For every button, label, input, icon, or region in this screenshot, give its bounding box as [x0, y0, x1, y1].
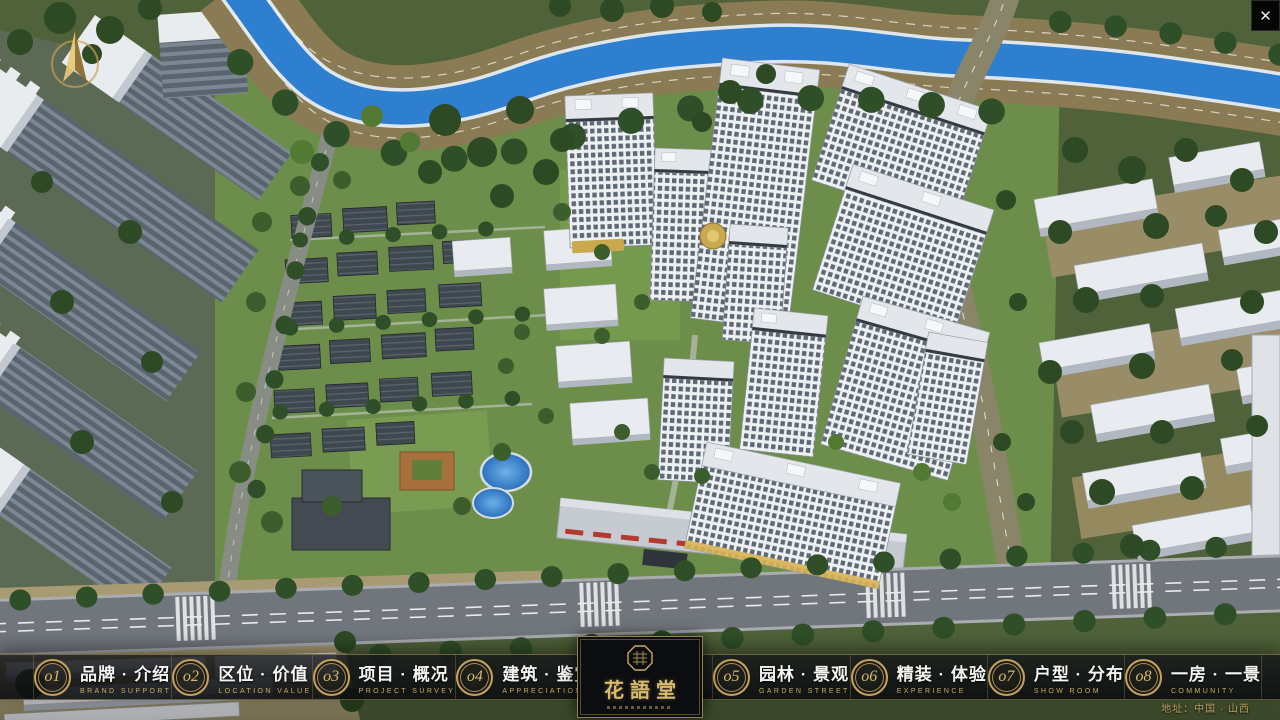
- menu-number-badge: o8: [1125, 659, 1162, 696]
- menu-item-subtitle: APPRECIATION: [502, 688, 582, 695]
- compass-icon: [46, 26, 104, 94]
- menu-number-badge: o1: [34, 659, 71, 696]
- menu-item-title: 品牌 · 介绍: [80, 660, 170, 685]
- logo-title: 花語堂: [598, 674, 682, 703]
- menu-item-architecture[interactable]: o4 建筑 · 鉴赏 APPRECIATION: [456, 655, 593, 699]
- project-address: 地址：中国 · 山西: [1161, 700, 1250, 715]
- menu-item-title: 户型 · 分布: [1034, 660, 1124, 685]
- menu-item-subtitle: SHOW ROOM: [1034, 688, 1101, 695]
- menu-number-badge: o2: [172, 659, 209, 696]
- menu-item-location-value[interactable]: o2 区位 · 价值 LOCATION VALUE: [172, 655, 312, 699]
- menu-group-right: o5 园林 · 景观 GARDEN STREET o6 精装 · 体验 EXPE…: [712, 655, 1249, 699]
- menu-item-project-overview[interactable]: o3 项目 · 概况 PROJECT SURVEY: [313, 655, 457, 699]
- menu-number-badge: o4: [456, 659, 493, 696]
- menu-item-landscape[interactable]: o5 园林 · 景观 GARDEN STREET: [712, 655, 851, 699]
- menu-number-badge: o5: [713, 659, 750, 696]
- app-window: ✕ o1 品牌 · 介绍 BRAND SUPPORT o2 区位 · 价值 LO…: [0, 0, 1280, 720]
- logo-caption-line: [607, 706, 673, 709]
- menu-item-title: 项目 · 概况: [359, 660, 449, 685]
- menu-item-title: 区位 · 价值: [218, 660, 308, 685]
- menu-item-title: 园林 · 景观: [759, 660, 849, 685]
- menu-item-room-views[interactable]: o8 一房 · 一景 COMMUNITY: [1125, 655, 1262, 699]
- menu-item-title: 一房 · 一景: [1171, 660, 1261, 685]
- menu-number-badge: o3: [313, 659, 350, 696]
- menu-item-subtitle: LOCATION VALUE: [218, 688, 311, 695]
- seal-icon: [627, 645, 653, 671]
- masterplan-viewport[interactable]: [0, 0, 1280, 720]
- menu-item-subtitle: COMMUNITY: [1171, 688, 1236, 695]
- menu-item-brand-intro[interactable]: o1 品牌 · 介绍 BRAND SUPPORT: [33, 655, 172, 699]
- project-logo[interactable]: 花語堂: [577, 636, 703, 718]
- menu-item-title: 精装 · 体验: [897, 660, 987, 685]
- menu-item-subtitle: EXPERIENCE: [897, 688, 966, 695]
- menu-item-subtitle: BRAND SUPPORT: [80, 688, 171, 695]
- right-edge-slab: [1252, 335, 1280, 560]
- menu-item-subtitle: PROJECT SURVEY: [359, 688, 456, 695]
- menu-item-floorplans[interactable]: o7 户型 · 分布 SHOW ROOM: [988, 655, 1125, 699]
- menu-item-interior-experience[interactable]: o6 精装 · 体验 EXPERIENCE: [851, 655, 988, 699]
- menu-number-badge: o7: [988, 659, 1025, 696]
- menu-group-left: o1 品牌 · 介绍 BRAND SUPPORT o2 区位 · 价值 LOCA…: [33, 655, 567, 699]
- close-button[interactable]: ✕: [1251, 0, 1280, 31]
- menu-number-badge: o6: [851, 659, 888, 696]
- menu-item-subtitle: GARDEN STREET: [759, 688, 850, 695]
